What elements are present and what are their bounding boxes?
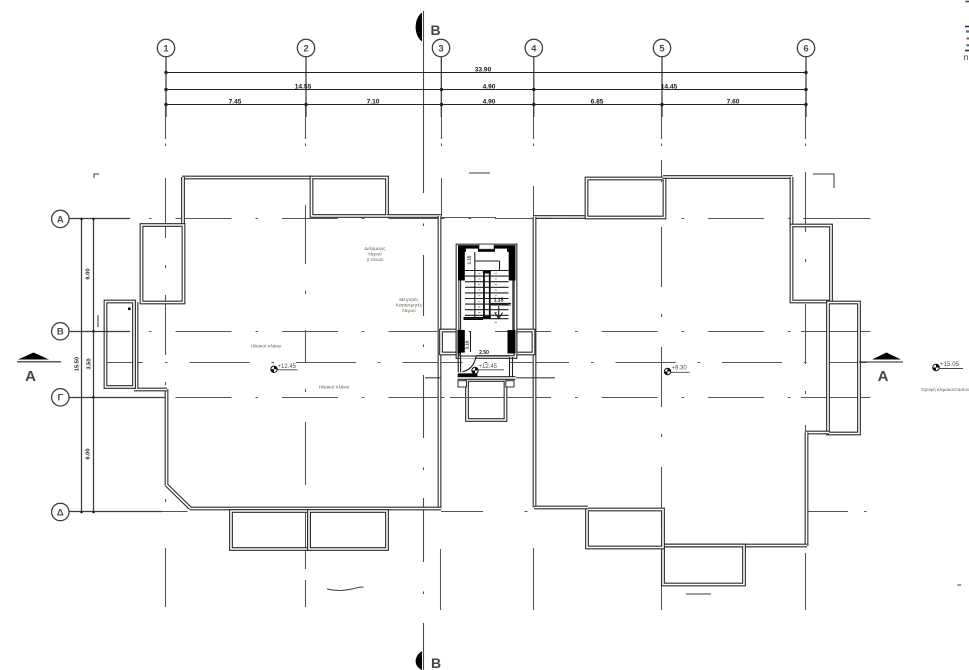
svg-text:2: 2: [303, 43, 308, 54]
svg-text:Δ: Δ: [57, 507, 64, 518]
svg-text:6.85: 6.85: [591, 99, 604, 106]
svg-text:4: 4: [531, 43, 537, 54]
svg-text:5: 5: [659, 43, 665, 54]
svg-text:+12.45: +12.45: [278, 364, 297, 370]
svg-text:Ηλιακοί πλάκοι: Ηλιακοί πλάκοι: [319, 384, 350, 390]
svg-text:15.50: 15.50: [75, 357, 81, 372]
svg-text:14.55: 14.55: [295, 84, 312, 91]
svg-text:1.15: 1.15: [494, 298, 504, 304]
svg-text:+9.30: +9.30: [672, 366, 688, 372]
svg-text:33.90: 33.90: [475, 66, 492, 73]
svg-text:3.10: 3.10: [465, 340, 470, 349]
svg-text:3.50: 3.50: [87, 358, 93, 369]
svg-text:1: 1: [163, 43, 169, 54]
svg-text:Κατανεμητές: Κατανεμητές: [396, 302, 423, 308]
svg-text:B: B: [431, 655, 441, 670]
svg-text:A: A: [25, 368, 36, 385]
svg-text:2.50: 2.50: [479, 350, 489, 356]
svg-text:6.00: 6.00: [86, 448, 92, 459]
svg-text:2 τόνων: 2 τόνων: [367, 256, 384, 262]
svg-text:Οροφή κλιμακοστασίου: Οροφή κλιμακοστασίου: [921, 386, 969, 392]
svg-text:B: B: [430, 22, 440, 38]
svg-text:4.90: 4.90: [483, 99, 496, 106]
svg-text:6: 6: [803, 43, 808, 54]
svg-text:+12.45: +12.45: [479, 364, 498, 370]
svg-text:4.90: 4.90: [483, 84, 496, 91]
svg-text:Γ: Γ: [57, 393, 63, 404]
svg-text:+15.05: +15.05: [940, 361, 960, 368]
svg-text:B: B: [57, 327, 64, 338]
svg-text:1.15: 1.15: [467, 255, 472, 264]
svg-text:7.10: 7.10: [367, 99, 380, 106]
svg-text:A: A: [878, 368, 889, 385]
svg-text:Π: Π: [964, 55, 969, 62]
svg-text:3: 3: [438, 43, 443, 54]
svg-text:Νερού: Νερού: [368, 251, 382, 257]
svg-text:7.45: 7.45: [229, 99, 242, 106]
svg-text:Νερού: Νερού: [402, 307, 416, 313]
svg-text:14.45: 14.45: [661, 84, 678, 91]
svg-text:6.00: 6.00: [86, 268, 92, 279]
svg-text:A: A: [57, 214, 64, 225]
svg-text:Μετρητές: Μετρητές: [399, 296, 419, 302]
svg-text:Ηλιακοί πλάκοι: Ηλιακοί πλάκοι: [251, 343, 282, 349]
svg-text:7.60: 7.60: [727, 99, 740, 106]
